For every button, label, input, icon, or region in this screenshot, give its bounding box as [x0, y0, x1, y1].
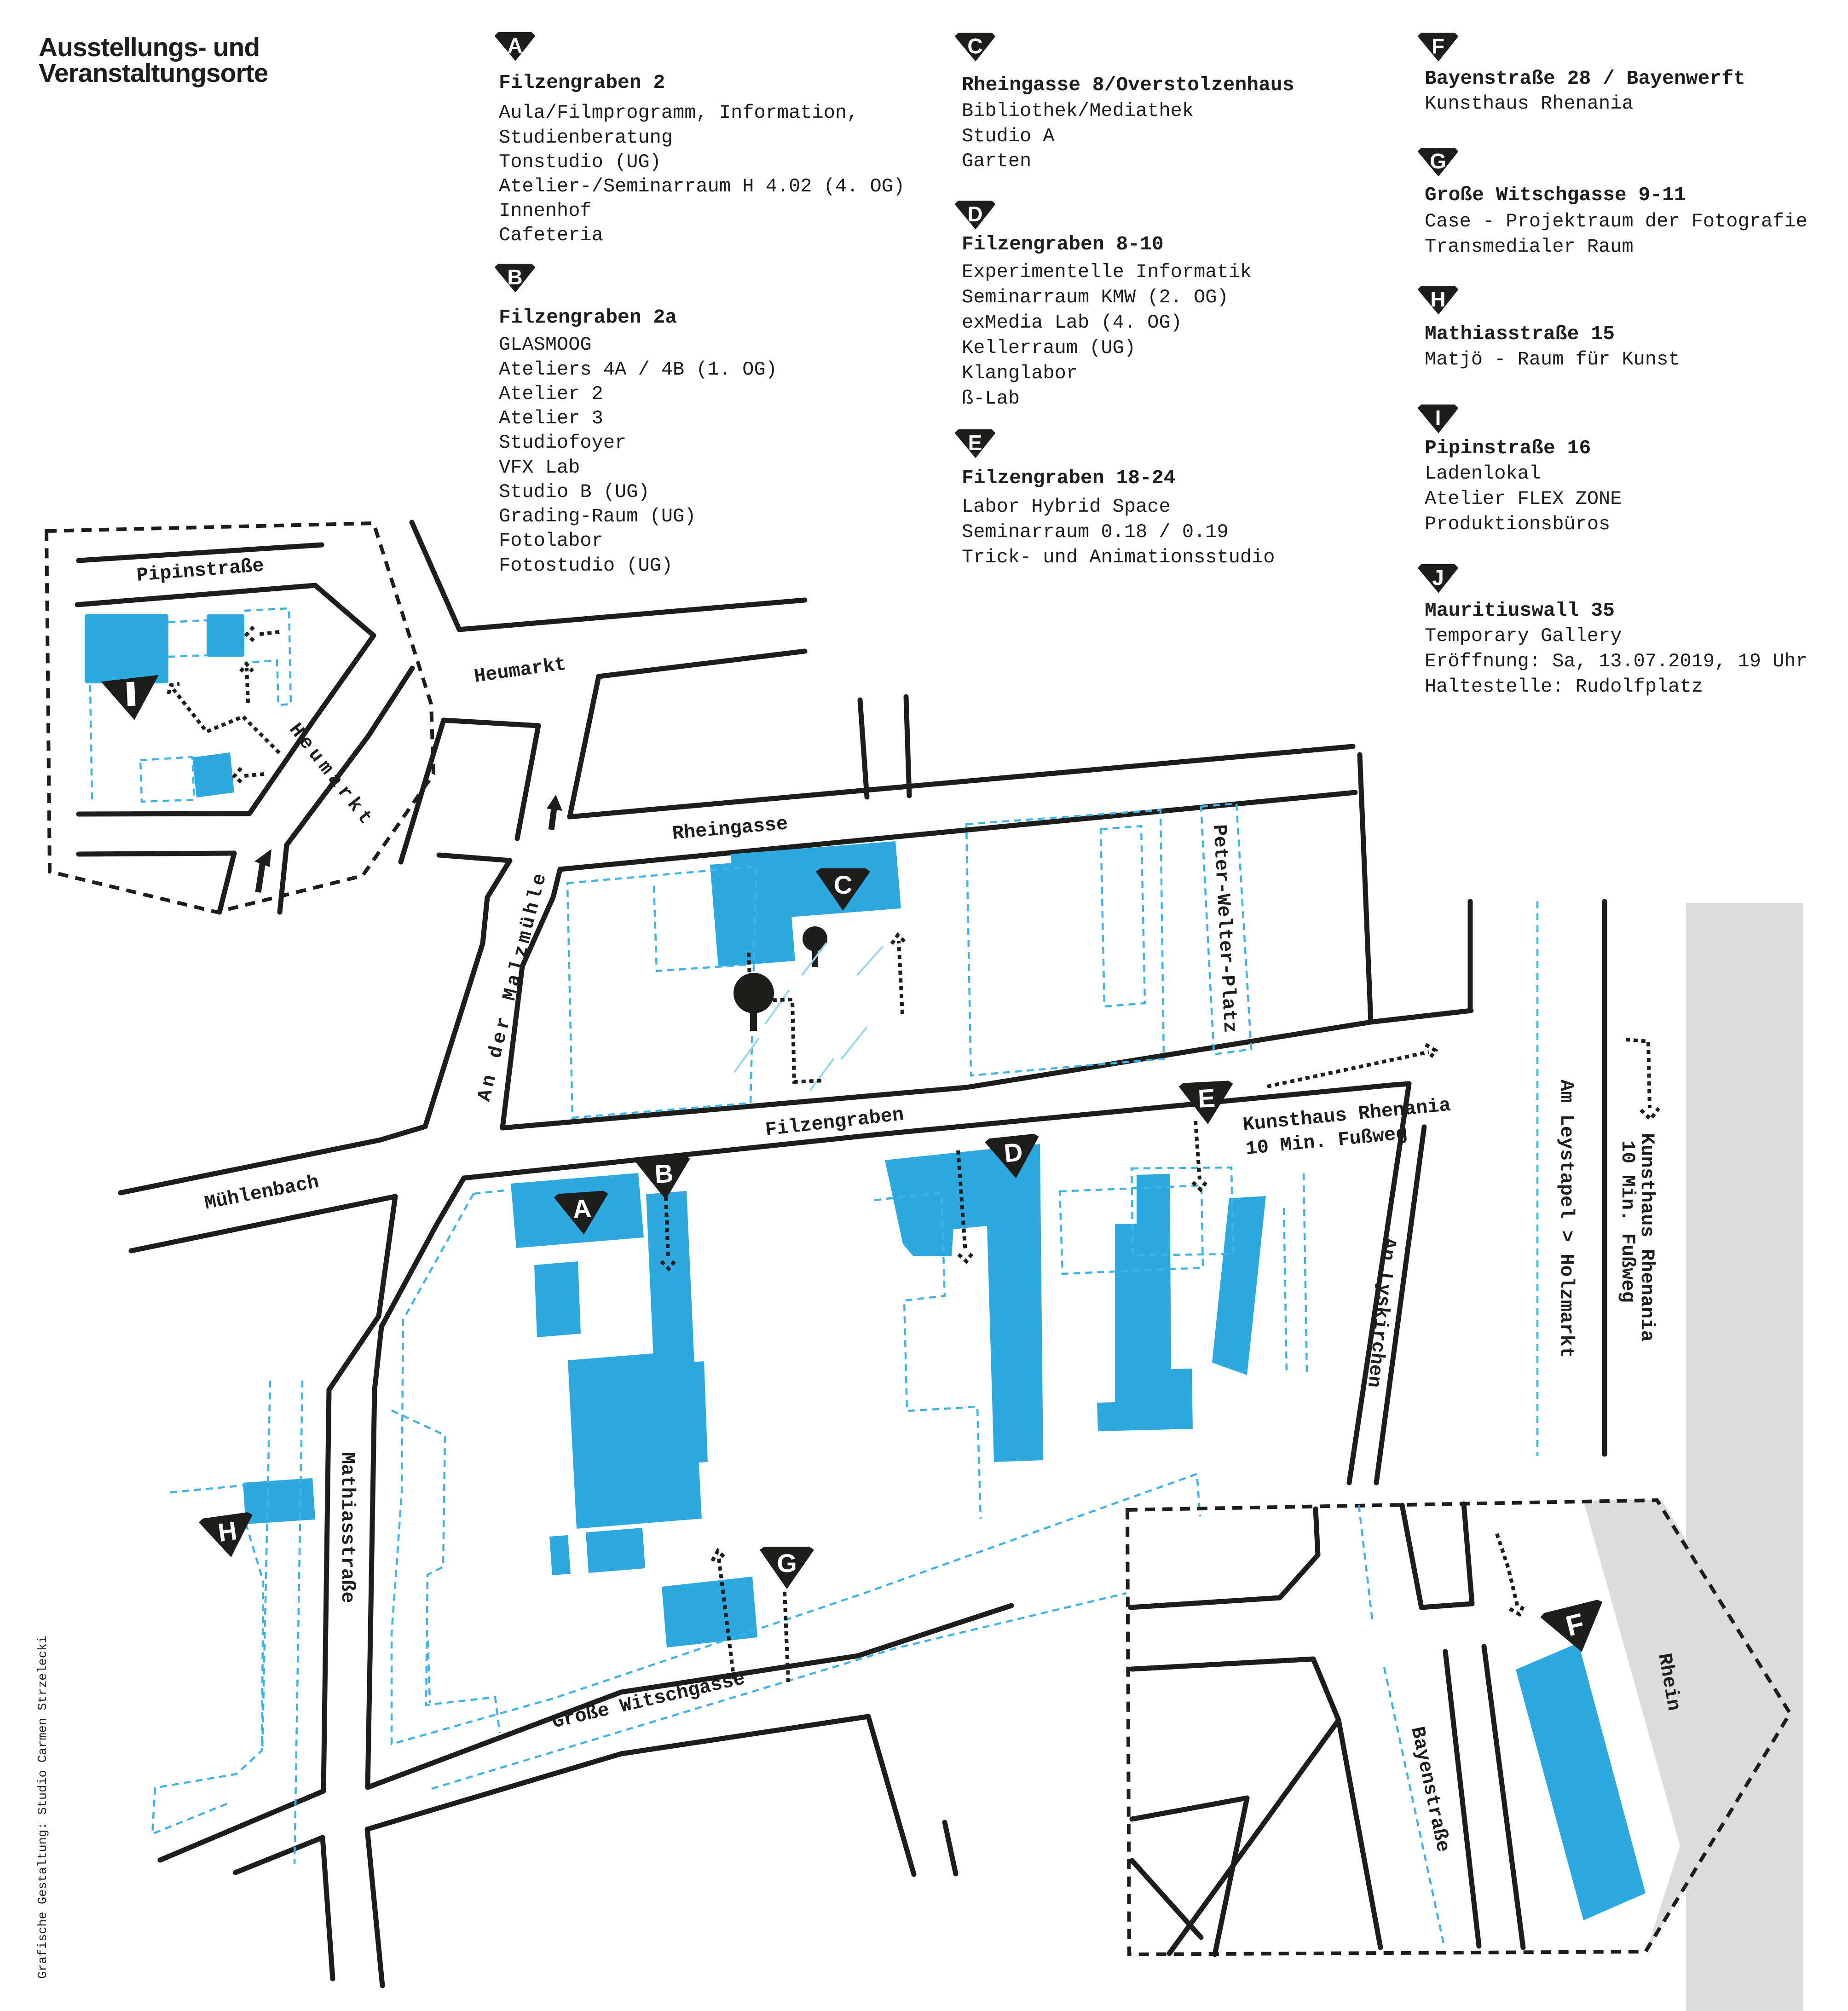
- svg-text:Tonstudio (UG): Tonstudio (UG): [499, 151, 661, 173]
- svg-text:G: G: [1430, 149, 1446, 173]
- svg-text:Produktionsbüros: Produktionsbüros: [1425, 513, 1610, 535]
- svg-text:Temporary Gallery: Temporary Gallery: [1425, 625, 1622, 647]
- svg-text:Große Witschgasse: Große Witschgasse: [550, 1668, 747, 1734]
- svg-text:VFX Lab: VFX Lab: [499, 457, 580, 479]
- svg-text:Grafische Gestaltung: Studio C: Grafische Gestaltung: Studio Carmen Strz…: [36, 1636, 50, 1979]
- svg-text:Atelier 3: Atelier 3: [499, 407, 603, 429]
- svg-text:exMedia Lab (4. OG): exMedia Lab (4. OG): [962, 312, 1182, 334]
- svg-text:Pipinstraße: Pipinstraße: [136, 555, 265, 587]
- svg-text:Transmedialer Raum: Transmedialer Raum: [1425, 236, 1634, 258]
- svg-text:J: J: [1432, 566, 1444, 589]
- svg-text:Veranstaltungsorte: Veranstaltungsorte: [39, 58, 268, 88]
- svg-text:Mühlenbach: Mühlenbach: [203, 1171, 321, 1215]
- svg-text:C: C: [834, 870, 852, 899]
- svg-text:Innenhof: Innenhof: [499, 200, 592, 222]
- svg-text:Heumarkt: Heumarkt: [473, 653, 567, 688]
- svg-text:Matjö - Raum für Kunst: Matjö - Raum für Kunst: [1425, 348, 1680, 370]
- svg-text:Mauritiuswall 35: Mauritiuswall 35: [1425, 599, 1615, 622]
- svg-text:E: E: [1197, 1083, 1216, 1113]
- svg-text:Haltestelle: Rudolfplatz: Haltestelle: Rudolfplatz: [1425, 676, 1703, 698]
- svg-text:I: I: [1435, 406, 1441, 430]
- svg-text:Cafeteria: Cafeteria: [499, 224, 603, 246]
- svg-text:Filzengraben 2: Filzengraben 2: [499, 71, 665, 94]
- svg-text:Studienberatung: Studienberatung: [499, 127, 673, 149]
- svg-text:Bayenstraße: Bayenstraße: [1406, 1725, 1454, 1854]
- svg-text:Studiofoyer: Studiofoyer: [499, 432, 626, 454]
- svg-text:A: A: [507, 34, 522, 58]
- svg-text:Seminarraum KMW (2. OG): Seminarraum KMW (2. OG): [962, 286, 1229, 308]
- svg-text:G: G: [777, 1549, 797, 1578]
- svg-text:Filzengraben 18-24: Filzengraben 18-24: [962, 467, 1175, 489]
- svg-text:Atelier 2: Atelier 2: [499, 383, 603, 405]
- svg-text:Aula/Filmprogramm, Information: Aula/Filmprogramm, Information,: [499, 102, 858, 124]
- svg-text:Rheingasse: Rheingasse: [671, 813, 789, 845]
- svg-text:GLASMOOG: GLASMOOG: [499, 334, 592, 356]
- svg-text:F: F: [1432, 34, 1444, 58]
- svg-text:A: A: [572, 1194, 592, 1224]
- svg-text:10 Min. Fußweg: 10 Min. Fußweg: [1617, 1140, 1639, 1303]
- svg-text:Atelier-/Seminarraum H 4.02 (4: Atelier-/Seminarraum H 4.02 (4. OG): [499, 175, 905, 197]
- svg-text:Fotolabor: Fotolabor: [499, 530, 603, 552]
- svg-text:Ateliers 4A / 4B (1. OG): Ateliers 4A / 4B (1. OG): [499, 358, 777, 381]
- svg-text:Am Leystapel > Holzmarkt: Am Leystapel > Holzmarkt: [1555, 1080, 1577, 1358]
- svg-text:Filzengraben 2a: Filzengraben 2a: [499, 306, 677, 329]
- svg-text:Große Witschgasse 9-11: Große Witschgasse 9-11: [1425, 184, 1686, 206]
- svg-text:Trick- und Animationsstudio: Trick- und Animationsstudio: [962, 546, 1275, 568]
- svg-text:Klanglabor: Klanglabor: [962, 362, 1078, 384]
- svg-text:C: C: [967, 34, 982, 58]
- svg-text:Labor Hybrid Space: Labor Hybrid Space: [962, 496, 1171, 518]
- svg-text:D: D: [967, 202, 982, 226]
- svg-text:B: B: [653, 1159, 674, 1189]
- svg-text:B: B: [507, 265, 522, 289]
- svg-text:Kunsthaus Rhenania: Kunsthaus Rhenania: [1425, 92, 1634, 115]
- svg-text:Atelier FLEX ZONE: Atelier FLEX ZONE: [1425, 488, 1622, 510]
- svg-text:Ausstellungs- und: Ausstellungs- und: [39, 33, 260, 62]
- svg-text:Bayenstraße 28 / Bayenwerft: Bayenstraße 28 / Bayenwerft: [1425, 67, 1745, 90]
- svg-text:Mathiasstraße 15: Mathiasstraße 15: [1425, 323, 1615, 345]
- svg-text:Kunsthaus Rhenania: Kunsthaus Rhenania: [1636, 1133, 1658, 1342]
- svg-text:Pipinstraße 16: Pipinstraße 16: [1425, 437, 1591, 459]
- svg-text:Kellerraum (UG): Kellerraum (UG): [962, 337, 1136, 359]
- svg-text:Rheingasse 8/Overstolzenhaus: Rheingasse 8/Overstolzenhaus: [962, 74, 1294, 96]
- svg-text:Case - Projektraum der Fotogra: Case - Projektraum der Fotografie: [1425, 210, 1808, 232]
- svg-text:Bibliothek/Mediathek: Bibliothek/Mediathek: [962, 100, 1194, 122]
- svg-text:Seminarraum 0.18 / 0.19: Seminarraum 0.18 / 0.19: [962, 521, 1229, 543]
- svg-text:Fotostudio (UG): Fotostudio (UG): [499, 555, 673, 577]
- svg-text:ß-Lab: ß-Lab: [962, 387, 1020, 410]
- svg-text:Ladenlokal: Ladenlokal: [1425, 462, 1541, 485]
- svg-text:Peter-Welter-Platz: Peter-Welter-Platz: [1208, 824, 1241, 1034]
- svg-text:Heumarkt: Heumarkt: [284, 719, 379, 832]
- svg-text:Eröffnung: Sa, 13.07.2019, 19: Eröffnung: Sa, 13.07.2019, 19 Uhr: [1425, 650, 1808, 672]
- svg-text:Studio A: Studio A: [962, 125, 1055, 147]
- svg-text:Grading-Raum (UG): Grading-Raum (UG): [499, 505, 696, 527]
- svg-text:Experimentelle Informatik: Experimentelle Informatik: [962, 261, 1252, 283]
- svg-text:H: H: [1430, 287, 1445, 311]
- svg-text:Filzengraben 8-10: Filzengraben 8-10: [962, 233, 1164, 255]
- svg-text:Studio B (UG): Studio B (UG): [499, 481, 650, 503]
- svg-text:D: D: [1003, 1137, 1024, 1168]
- svg-text:Garten: Garten: [962, 150, 1031, 172]
- svg-text:E: E: [968, 431, 982, 455]
- svg-text:Mathiasstraße: Mathiasstraße: [336, 1452, 358, 1603]
